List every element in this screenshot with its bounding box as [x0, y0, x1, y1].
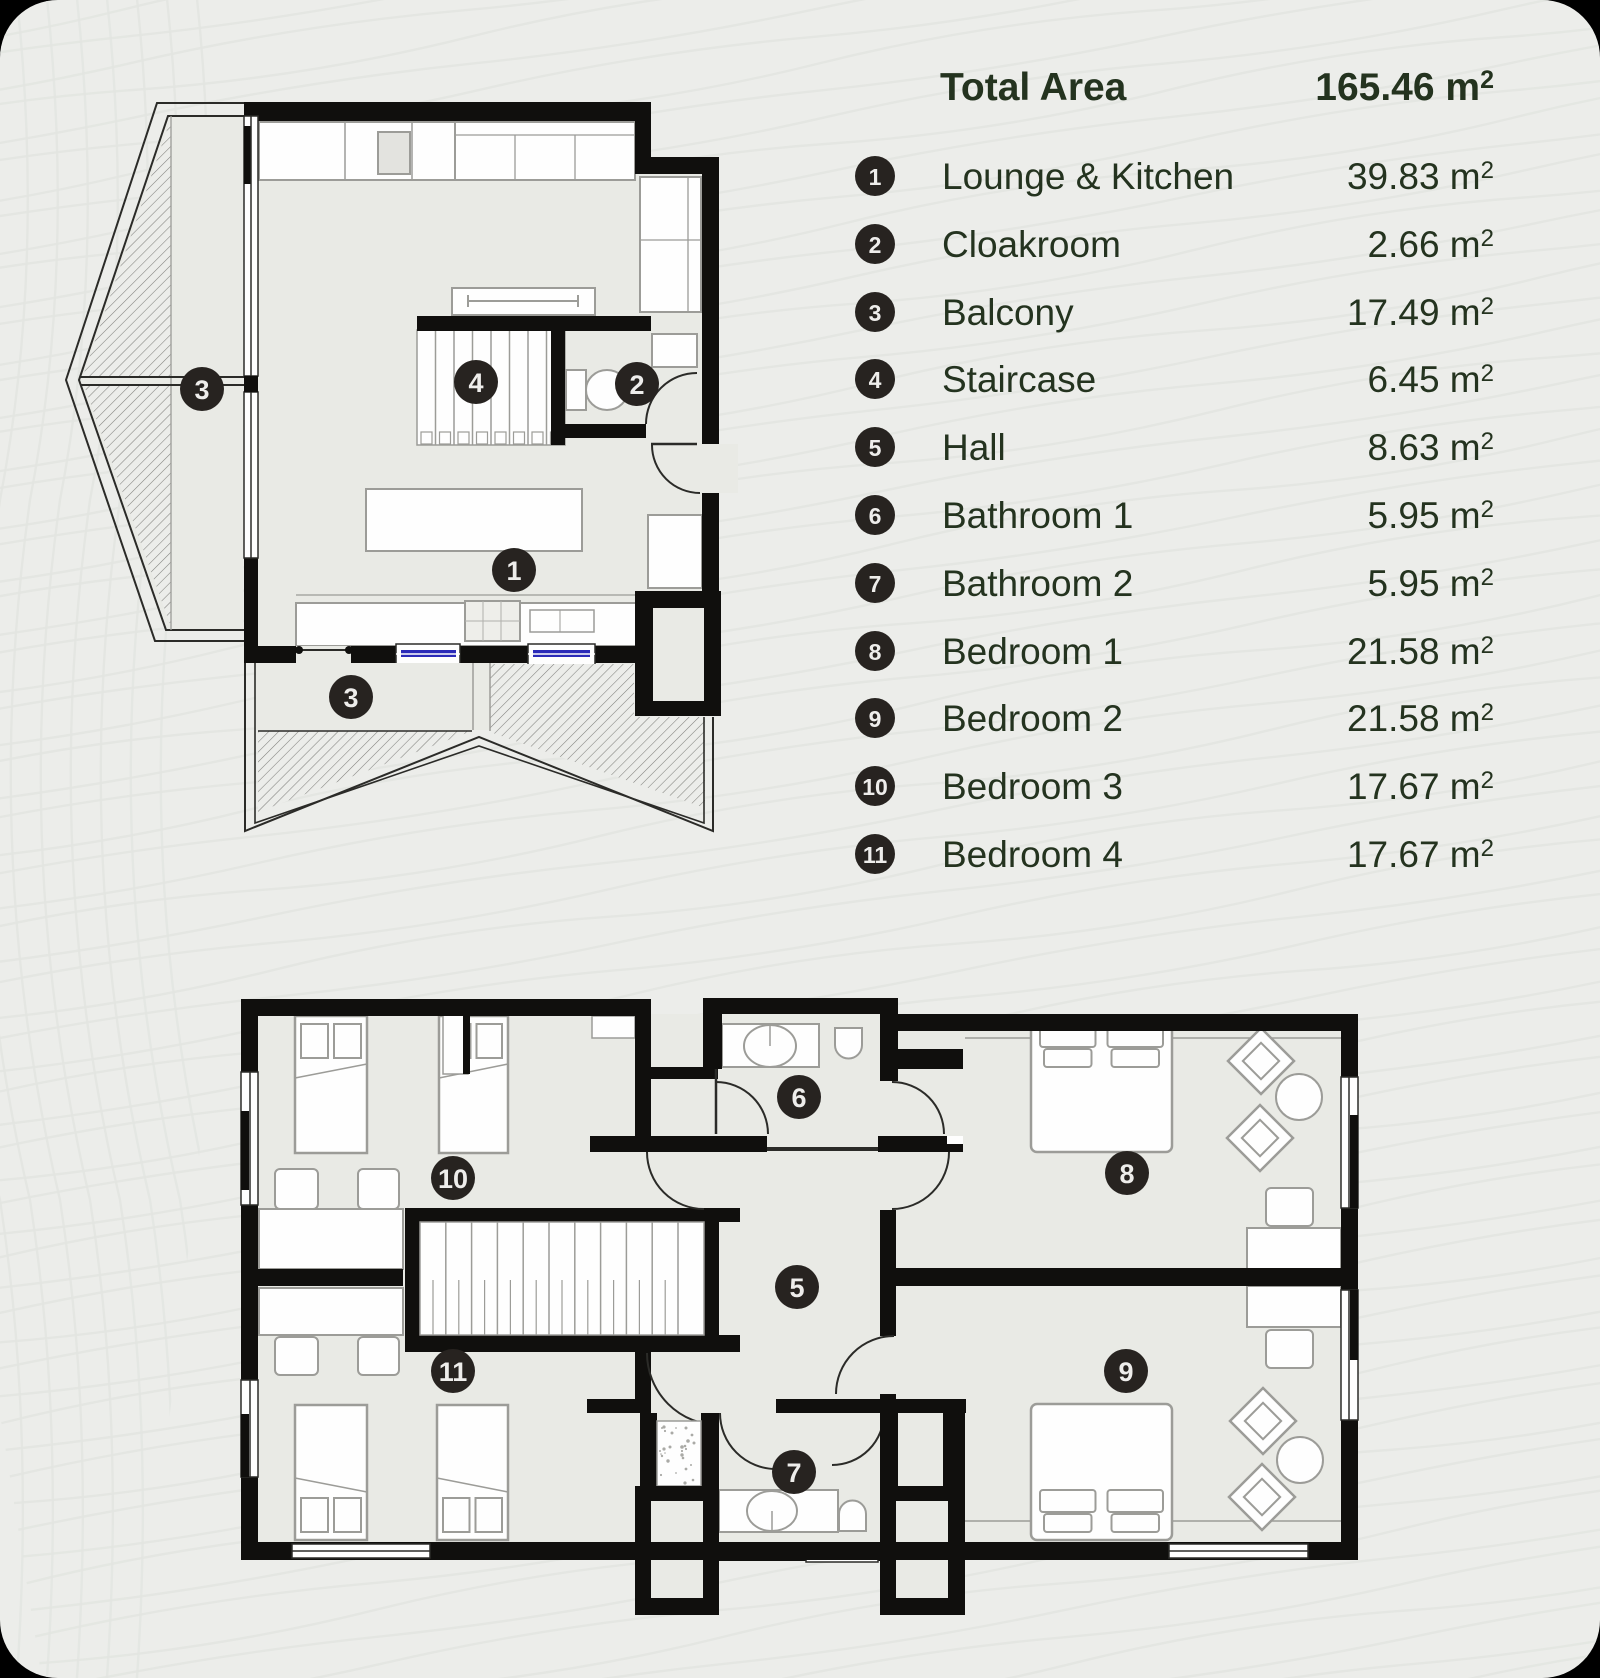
svg-text:Cloakroom: Cloakroom	[942, 224, 1121, 265]
svg-text:21.58 m2: 21.58 m2	[1347, 631, 1494, 672]
svg-text:Bedroom 3: Bedroom 3	[942, 766, 1123, 807]
svg-text:5: 5	[869, 435, 882, 461]
svg-text:Total Area: Total Area	[940, 66, 1127, 109]
svg-text:3: 3	[343, 683, 358, 713]
svg-text:10: 10	[862, 774, 888, 800]
svg-text:4: 4	[869, 367, 882, 393]
svg-text:10: 10	[438, 1164, 468, 1194]
svg-text:9: 9	[869, 706, 882, 732]
svg-text:8: 8	[869, 639, 882, 665]
svg-text:2.66 m2: 2.66 m2	[1368, 224, 1494, 265]
svg-text:11: 11	[439, 1357, 468, 1387]
svg-text:8.63 m2: 8.63 m2	[1368, 427, 1494, 468]
svg-text:4: 4	[468, 368, 483, 398]
svg-text:1: 1	[869, 164, 882, 190]
svg-text:21.58 m2: 21.58 m2	[1347, 698, 1494, 739]
svg-text:Bedroom 2: Bedroom 2	[942, 698, 1123, 739]
svg-text:11: 11	[863, 842, 888, 868]
svg-text:Bedroom 1: Bedroom 1	[942, 631, 1123, 672]
svg-text:Staircase: Staircase	[942, 359, 1096, 400]
svg-text:39.83 m2: 39.83 m2	[1347, 156, 1494, 197]
svg-text:Balcony: Balcony	[942, 292, 1074, 333]
svg-text:Hall: Hall	[942, 427, 1006, 468]
svg-text:6.45 m2: 6.45 m2	[1368, 359, 1494, 400]
svg-text:6: 6	[869, 503, 882, 529]
svg-text:8: 8	[1119, 1159, 1134, 1189]
svg-text:165.46 m2: 165.46 m2	[1315, 66, 1494, 109]
svg-text:17.67 m2: 17.67 m2	[1347, 834, 1494, 875]
svg-text:5: 5	[789, 1273, 804, 1303]
svg-text:Bedroom 4: Bedroom 4	[942, 834, 1123, 875]
svg-text:17.49 m2: 17.49 m2	[1347, 292, 1494, 333]
svg-text:3: 3	[194, 375, 209, 405]
svg-text:2: 2	[869, 232, 882, 258]
svg-text:3: 3	[869, 300, 882, 326]
svg-text:Bathroom 2: Bathroom 2	[942, 563, 1133, 604]
svg-text:7: 7	[869, 571, 882, 597]
svg-text:1: 1	[506, 556, 521, 586]
svg-text:Bathroom 1: Bathroom 1	[942, 495, 1133, 536]
svg-text:7: 7	[786, 1458, 801, 1488]
svg-text:5.95 m2: 5.95 m2	[1368, 495, 1494, 536]
svg-text:6: 6	[791, 1083, 806, 1113]
svg-text:5.95 m2: 5.95 m2	[1368, 563, 1494, 604]
svg-text:2: 2	[629, 370, 644, 400]
svg-text:9: 9	[1118, 1357, 1133, 1387]
svg-text:Lounge & Kitchen: Lounge & Kitchen	[942, 156, 1234, 197]
svg-text:17.67 m2: 17.67 m2	[1347, 766, 1494, 807]
